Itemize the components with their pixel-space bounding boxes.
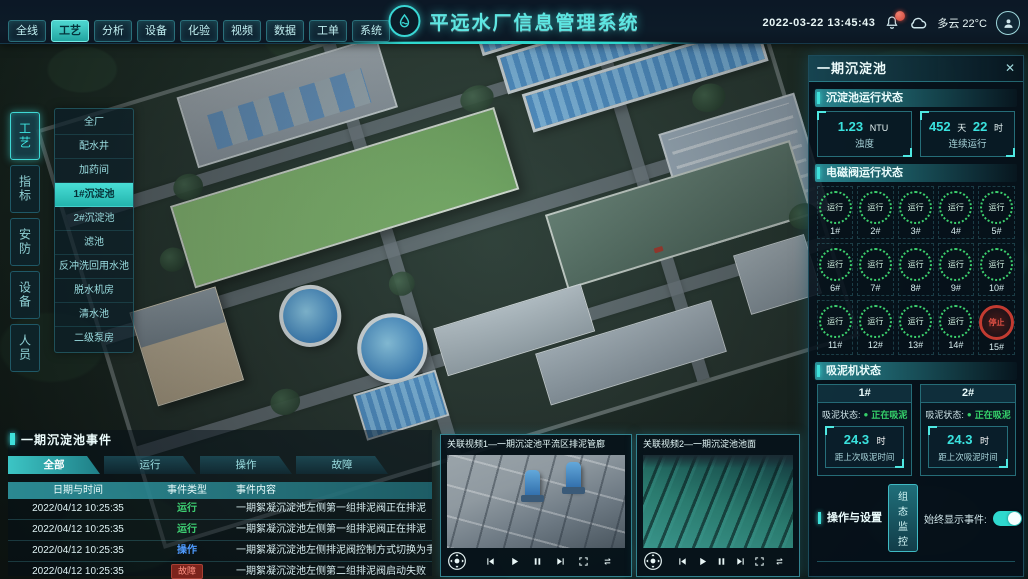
- event-table-header: 日期与时间 事件类型 事件内容: [8, 482, 432, 499]
- valve-status-ring: 运行: [980, 248, 1013, 281]
- valve-3#[interactable]: 运行3#: [898, 186, 934, 239]
- menu-item-1#沉淀池[interactable]: 1#沉淀池: [55, 183, 133, 207]
- uptime-days: 452: [929, 119, 951, 134]
- valve-15#[interactable]: 停止15#: [978, 300, 1015, 355]
- config-monitor-button[interactable]: 组态监控: [888, 484, 918, 552]
- valve-status-ring: 运行: [859, 305, 892, 338]
- bell-icon[interactable]: [884, 15, 900, 31]
- valve-status-ring: 运行: [819, 191, 852, 224]
- valve-label: 7#: [870, 283, 880, 293]
- left-tab-安防[interactable]: 安防: [10, 218, 40, 266]
- menu-item-清水池[interactable]: 清水池: [55, 303, 133, 327]
- suction-machine-2: 2# 吸泥状态: ● 正在吸泥 24.3 时 距上次吸泥时间: [920, 384, 1015, 476]
- pan-dpad-icon[interactable]: [447, 551, 467, 571]
- run-status-stats: 1.23 NTU 浊度 452 天 22 时 连续运行: [817, 111, 1015, 157]
- event-time: 2022/04/12 10:25:35: [8, 499, 148, 519]
- event-type-badge: 运行: [177, 524, 197, 535]
- building: [535, 300, 727, 405]
- event-row: 2022/04/12 10:25:35运行一期絮凝沉淀池左侧第一组排泥阀正在排泥: [8, 520, 432, 541]
- turbidity-card: 1.23 NTU 浊度: [817, 111, 912, 157]
- fullscreen-icon[interactable]: [754, 556, 765, 567]
- pause-icon[interactable]: [532, 556, 543, 567]
- play-icon[interactable]: [509, 556, 520, 567]
- valve-12#[interactable]: 运行12#: [857, 300, 893, 355]
- event-type-badge: 运行: [177, 503, 197, 514]
- valve-label: 1#: [830, 226, 840, 236]
- cloud-icon: [909, 16, 928, 30]
- valve-label: 8#: [911, 283, 921, 293]
- valve-6#[interactable]: 运行6#: [817, 243, 853, 296]
- tree: [267, 385, 303, 419]
- valve-label: 3#: [911, 226, 921, 236]
- menu-item-全厂[interactable]: 全厂: [55, 111, 133, 135]
- valve-status-ring: 运行: [859, 248, 892, 281]
- valve-10#[interactable]: 运行10#: [978, 243, 1015, 296]
- suction-machines: 1# 吸泥状态: ● 正在吸泥 24.3 时 距上次吸泥时间 2# 吸泥状: [817, 384, 1015, 476]
- valve-status-ring: 运行: [980, 191, 1013, 224]
- valve-7#[interactable]: 运行7#: [857, 243, 893, 296]
- valve-2#[interactable]: 运行2#: [857, 186, 893, 239]
- pump: [566, 462, 581, 490]
- valve-14#[interactable]: 运行14#: [938, 300, 974, 355]
- page-title: 平远水厂信息管理系统: [429, 8, 639, 35]
- event-type: 运行: [148, 499, 226, 519]
- top-tab-设备[interactable]: 设备: [137, 20, 175, 42]
- building: [433, 283, 595, 376]
- building: [129, 286, 244, 406]
- building: [177, 36, 399, 168]
- event-type-badge: 故障: [171, 564, 203, 579]
- top-tab-系统[interactable]: 系统: [352, 20, 390, 42]
- title-block: 平远水厂信息管理系统: [388, 5, 639, 37]
- skip-forward-icon[interactable]: [555, 556, 566, 567]
- suction-status: 正在吸泥: [871, 408, 907, 421]
- suction-machine-1: 1# 吸泥状态: ● 正在吸泥 24.3 时 距上次吸泥时间: [817, 384, 912, 476]
- app: 全线工艺分析设备化验视频数据工单系统 平远水厂信息管理系统 2022-03-22…: [0, 0, 1028, 579]
- top-tab-工单[interactable]: 工单: [309, 20, 347, 42]
- video-panel-1: 关联视频1—一期沉淀池平流区排泥管廊: [440, 434, 632, 577]
- valve-label: 6#: [830, 283, 840, 293]
- close-icon[interactable]: ✕: [1005, 56, 1015, 81]
- clarifier-pool: [349, 305, 436, 392]
- video-2-controls: [643, 550, 793, 572]
- valve-5#[interactable]: 运行5#: [978, 186, 1015, 239]
- event-content: 一期絮凝沉淀池左侧排泥阀控制方式切换为手动: [226, 541, 432, 561]
- valve-label: 2#: [870, 226, 880, 236]
- tree: [386, 268, 418, 299]
- weather-text: 多云 22°C: [937, 15, 987, 31]
- video-2-feed[interactable]: [643, 455, 793, 548]
- uptime-card: 452 天 22 时 连续运行: [920, 111, 1015, 157]
- top-right-cluster: 2022-03-22 13:45:43 多云 22°C: [763, 11, 1021, 35]
- menu-item-二级泵房[interactable]: 二级泵房: [55, 327, 133, 350]
- tree: [457, 81, 497, 116]
- event-tab-全部[interactable]: 全部: [8, 456, 100, 474]
- valve-status-grid: 运行1#运行2#运行3#运行4#运行5#运行6#运行7#运行8#运行9#运行10…: [817, 186, 1015, 355]
- event-content: 一期絮凝沉淀池左侧第一组排泥阀正在排泥: [226, 520, 432, 540]
- valve-13#[interactable]: 运行13#: [898, 300, 934, 355]
- event-content: 一期絮凝沉淀池左侧第二组排泥阀启动失败: [226, 562, 432, 579]
- section-valves: 电磁阀运行状态: [815, 164, 1017, 182]
- events-panel: 一期沉淀池事件 全部运行操作故障 日期与时间 事件类型 事件内容 2022/04…: [8, 430, 432, 576]
- valve-label: 9#: [951, 283, 961, 293]
- skip-forward-icon[interactable]: [735, 556, 746, 567]
- turbidity-value: 1.23: [838, 119, 863, 134]
- suction-time-box: 24.3 时 距上次吸泥时间: [825, 426, 904, 468]
- valve-status-ring: 运行: [819, 305, 852, 338]
- valve-label: 11#: [828, 340, 842, 350]
- always-show-events-label: 始终显示事件:: [924, 511, 987, 526]
- col-datetime: 日期与时间: [8, 482, 148, 499]
- always-show-events-toggle[interactable]: [993, 511, 1022, 526]
- video-2-title: 关联视频2—一期沉淀池池面: [637, 435, 799, 452]
- event-content: 一期絮凝沉淀池左侧第一组排泥阀正在排泥: [226, 499, 432, 519]
- green-roof-building: [170, 107, 519, 288]
- menu-item-加药间[interactable]: 加药间: [55, 159, 133, 183]
- section-ops-title: 操作与设置: [817, 509, 882, 527]
- event-type: 运行: [148, 520, 226, 540]
- process-menu: 全厂配水井加药间1#沉淀池2#沉淀池滤池反冲洗回用水池脱水机房清水池二级泵房: [54, 108, 134, 353]
- valve-label: 12#: [868, 340, 883, 350]
- left-tab-工艺[interactable]: 工艺: [10, 112, 40, 160]
- left-tab-指标[interactable]: 指标: [10, 165, 40, 213]
- event-type: 操作: [148, 541, 226, 561]
- valve-label: 15#: [989, 342, 1004, 352]
- clarifier-pool: [272, 277, 349, 354]
- top-bar: 全线工艺分析设备化验视频数据工单系统 平远水厂信息管理系统 2022-03-22…: [0, 0, 1028, 44]
- left-tab-设备[interactable]: 设备: [10, 271, 40, 319]
- fullscreen-icon[interactable]: [578, 556, 589, 567]
- video-1-feed[interactable]: [447, 455, 625, 548]
- event-row: 2022/04/12 10:25:35操作一期絮凝沉淀池左侧排泥阀控制方式切换为…: [8, 541, 432, 562]
- filter-basin: [658, 93, 829, 251]
- valve-status-ring: 运行: [819, 248, 852, 281]
- datetime: 2022-03-22 13:45:43: [763, 17, 876, 29]
- loop-icon[interactable]: [602, 556, 613, 567]
- events-panel-title: 一期沉淀池事件: [8, 430, 432, 448]
- top-nav: 全线工艺分析设备化验视频数据工单系统: [8, 20, 390, 42]
- video-1-title: 关联视频1—一期沉淀池平流区排泥管廊: [441, 435, 631, 452]
- tree: [689, 79, 730, 116]
- play-icon[interactable]: [697, 556, 708, 567]
- event-time: 2022/04/12 10:25:35: [8, 562, 148, 579]
- uptime-label: 连续运行: [948, 136, 986, 150]
- top-tab-全线[interactable]: 全线: [8, 20, 46, 42]
- left-tab-人员[interactable]: 人员: [10, 324, 40, 372]
- valve-status-ring: 运行: [939, 305, 972, 338]
- detail-panel: 一期沉淀池 ✕ 沉淀池运行状态 1.23 NTU 浊度 452 天 22 时: [808, 55, 1024, 577]
- col-content: 事件内容: [226, 482, 432, 499]
- valve-label: 5#: [991, 226, 1001, 236]
- event-filter-tabs: 全部运行操作故障: [8, 456, 432, 474]
- notification-badge: [895, 11, 905, 21]
- video-1-controls: [447, 550, 625, 572]
- valve-label: 14#: [948, 340, 963, 350]
- valve-label: 13#: [908, 340, 923, 350]
- event-type: 故障: [148, 562, 226, 579]
- menu-item-滤池[interactable]: 滤池: [55, 231, 133, 255]
- event-type-badge: 操作: [177, 545, 197, 556]
- valve-status-ring: 运行: [899, 248, 932, 281]
- valve-8#[interactable]: 运行8#: [898, 243, 934, 296]
- top-tab-化验[interactable]: 化验: [180, 20, 218, 42]
- section-run-status: 沉淀池运行状态: [815, 89, 1017, 107]
- valve-label: 10#: [989, 283, 1004, 293]
- turbidity-unit: NTU: [870, 123, 889, 133]
- avatar[interactable]: [996, 11, 1020, 35]
- valve-status-ring: 运行: [899, 305, 932, 338]
- event-time: 2022/04/12 10:25:35: [8, 520, 148, 540]
- tree: [157, 244, 189, 275]
- col-type: 事件类型: [148, 482, 226, 499]
- detail-panel-title: 一期沉淀池: [817, 56, 887, 81]
- valve-4#[interactable]: 运行4#: [938, 186, 974, 239]
- event-row: 2022/04/12 10:25:35故障一期絮凝沉淀池左侧第二组排泥阀启动失败: [8, 562, 432, 579]
- valve-status-ring: 运行: [899, 191, 932, 224]
- top-tab-数据[interactable]: 数据: [266, 20, 304, 42]
- turbidity-label: 浊度: [855, 136, 874, 150]
- valve-status-ring: 运行: [939, 248, 972, 281]
- road: [137, 236, 829, 459]
- status-dot: ●: [864, 410, 869, 419]
- loop-icon[interactable]: [774, 556, 785, 567]
- tree: [170, 170, 206, 204]
- skip-back-icon[interactable]: [485, 556, 496, 567]
- menu-item-2#沉淀池[interactable]: 2#沉淀池: [55, 207, 133, 231]
- valve-label: 4#: [951, 226, 961, 236]
- detail-panel-header: 一期沉淀池 ✕: [809, 56, 1023, 82]
- valve-1#[interactable]: 运行1#: [817, 186, 853, 239]
- road: [102, 121, 795, 345]
- event-time: 2022/04/12 10:25:35: [8, 541, 148, 561]
- pause-icon[interactable]: [716, 556, 727, 567]
- valve-status-ring: 运行: [859, 191, 892, 224]
- water-drop-logo-icon: [388, 5, 420, 37]
- event-tab-运行[interactable]: 运行: [104, 456, 196, 474]
- top-tab-视频[interactable]: 视频: [223, 20, 261, 42]
- left-tab-rail: 工艺指标安防设备人员: [10, 112, 40, 372]
- valve-status-ring: 停止: [979, 305, 1014, 340]
- road: [323, 43, 461, 458]
- ops-section: 操作与设置 组态监控 始终显示事件:: [817, 484, 1015, 562]
- status-dot: ●: [967, 410, 972, 419]
- valve-9#[interactable]: 运行9#: [938, 243, 974, 296]
- top-tab-工艺[interactable]: 工艺: [51, 20, 89, 42]
- road: [572, 0, 710, 382]
- event-tab-操作[interactable]: 操作: [200, 456, 292, 474]
- menu-item-反冲洗回用水池[interactable]: 反冲洗回用水池: [55, 255, 133, 279]
- top-tab-分析[interactable]: 分析: [94, 20, 132, 42]
- pump: [525, 470, 540, 498]
- valve-status-ring: 运行: [939, 191, 972, 224]
- event-row: 2022/04/12 10:25:35运行一期絮凝沉淀池左侧第一组排泥阀正在排泥: [8, 499, 432, 520]
- suction-time-box: 24.3 时 距上次吸泥时间: [928, 426, 1007, 468]
- car: [654, 246, 664, 253]
- menu-item-脱水机房[interactable]: 脱水机房: [55, 279, 133, 303]
- uptime-hours: 22: [973, 119, 987, 134]
- valve-11#[interactable]: 运行11#: [817, 300, 853, 355]
- building: [545, 140, 813, 289]
- section-suction: 吸泥机状态: [815, 362, 1017, 380]
- video-panel-2: 关联视频2—一期沉淀池池面: [636, 434, 800, 577]
- pan-dpad-icon[interactable]: [643, 551, 663, 571]
- skip-back-icon[interactable]: [677, 556, 688, 567]
- menu-item-配水井[interactable]: 配水井: [55, 135, 133, 159]
- event-table-body: 2022/04/12 10:25:35运行一期絮凝沉淀池左侧第一组排泥阀正在排泥…: [8, 499, 432, 579]
- event-tab-故障[interactable]: 故障: [296, 456, 388, 474]
- suction-status: 正在吸泥: [975, 408, 1011, 421]
